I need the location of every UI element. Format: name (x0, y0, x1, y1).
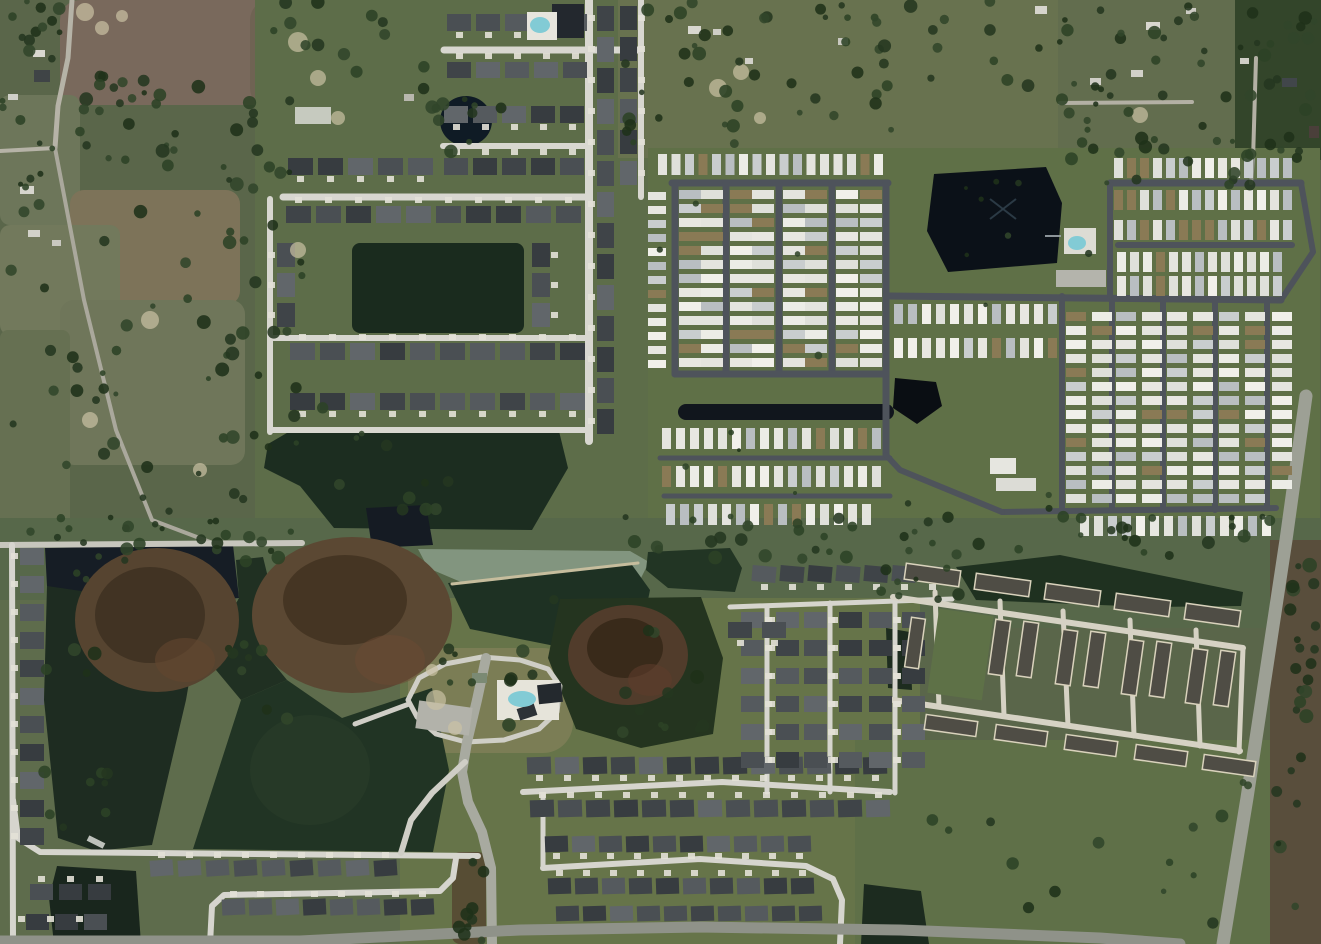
tree (623, 514, 629, 520)
tree (1061, 24, 1073, 36)
mobile-home (861, 154, 870, 175)
tree (793, 491, 797, 495)
house (866, 800, 891, 818)
building (1035, 6, 1047, 14)
house (839, 668, 862, 684)
mobile-home (662, 466, 671, 487)
building (996, 478, 1036, 491)
driveway (588, 201, 595, 207)
mobile-home (1092, 410, 1112, 419)
house (782, 800, 807, 818)
mobile-home (1219, 424, 1239, 433)
tree (990, 57, 999, 66)
tree (116, 99, 124, 107)
mobile-home (1245, 494, 1265, 503)
mobile-home (1092, 438, 1112, 447)
tree (942, 512, 953, 523)
mobile-home (1116, 326, 1136, 335)
house (762, 622, 786, 638)
mobile-home (1272, 424, 1292, 433)
sand-patch (116, 10, 128, 22)
mobile-home (860, 218, 882, 227)
sand-patch (426, 664, 438, 676)
tree (236, 326, 249, 339)
driveway (482, 149, 489, 155)
tree (245, 654, 252, 661)
tree (737, 448, 741, 452)
driveway (569, 149, 576, 155)
tree (1077, 137, 1088, 148)
driveway (539, 411, 546, 417)
mobile-home (1244, 220, 1253, 240)
mobile-home (1020, 304, 1029, 324)
driveway (707, 792, 714, 798)
tree (338, 48, 350, 60)
driveway (894, 701, 901, 707)
house (261, 859, 285, 877)
mobile-home (739, 154, 748, 175)
driveway (847, 792, 854, 798)
tree (829, 111, 838, 120)
mobile-home (805, 288, 827, 297)
mobile-home (1142, 480, 1162, 489)
mobile-home (1270, 220, 1279, 240)
house (348, 158, 373, 175)
mobile-home (679, 260, 701, 269)
mobile-home (807, 154, 816, 175)
mobile-home (836, 204, 858, 213)
tree (142, 90, 147, 95)
mobile-home (1193, 354, 1213, 363)
mobile-home (1066, 354, 1086, 363)
tree (197, 315, 211, 329)
tree (727, 119, 740, 132)
driveway (844, 775, 851, 781)
mobile-home (816, 466, 825, 487)
mobile-home (1231, 220, 1240, 240)
tree (1135, 132, 1148, 145)
tree (351, 66, 363, 78)
tree (255, 371, 263, 379)
driveway (67, 876, 74, 882)
tree (36, 2, 46, 12)
mobile-home (1219, 480, 1239, 489)
tree (1295, 563, 1301, 569)
driveway (11, 833, 18, 839)
mobile-home (648, 262, 666, 270)
tree (240, 640, 249, 649)
driveway (761, 584, 768, 590)
mobile-home (836, 246, 858, 255)
house (526, 206, 551, 223)
driveway (768, 729, 775, 735)
tree (1107, 526, 1115, 534)
tree (1161, 889, 1166, 894)
house (869, 612, 892, 628)
mobile-home (1034, 338, 1043, 358)
house (563, 62, 587, 78)
driveway (551, 312, 558, 318)
mobile-home (746, 428, 755, 449)
mobile-home (752, 288, 774, 297)
tree (1202, 536, 1215, 549)
mobile-home (1219, 340, 1239, 349)
mobile-home (1166, 220, 1175, 240)
tree (248, 183, 258, 193)
driveway (556, 870, 563, 876)
tree (286, 169, 292, 175)
mobile-home (1114, 190, 1123, 210)
tree (397, 504, 409, 516)
tree (443, 643, 454, 654)
house (149, 859, 173, 877)
mobile-home (1257, 220, 1266, 240)
house (726, 800, 751, 818)
house (741, 724, 764, 740)
tree (8, 12, 17, 21)
house (545, 836, 569, 853)
tree (913, 577, 918, 582)
house (346, 206, 371, 223)
driveway (540, 149, 547, 155)
driveway (419, 334, 426, 340)
tree (262, 705, 272, 715)
mobile-home (1066, 410, 1086, 419)
house (741, 668, 764, 684)
house (440, 393, 465, 410)
tree (692, 47, 706, 61)
tree (15, 115, 25, 125)
tree (643, 625, 654, 636)
mobile-home (1167, 438, 1187, 447)
tree (290, 382, 301, 393)
mobile-home (1169, 276, 1178, 296)
mobile-home (1245, 326, 1265, 335)
mobile-home (860, 302, 882, 311)
driveway (588, 108, 595, 114)
driveway (623, 792, 630, 798)
mobile-home (1245, 396, 1265, 405)
driveway (894, 757, 901, 763)
tree (797, 554, 807, 564)
driveway (592, 775, 599, 781)
tree (88, 647, 102, 661)
tree (1022, 79, 1035, 92)
mobile-home (802, 466, 811, 487)
tree (1265, 139, 1277, 151)
mobile-home (783, 204, 805, 213)
tree (40, 283, 49, 292)
tree (256, 537, 267, 548)
tree (905, 500, 911, 506)
tree (880, 564, 891, 575)
tree (107, 437, 120, 450)
house (502, 158, 526, 175)
house (527, 757, 552, 775)
mobile-home (1066, 424, 1086, 433)
mobile-home (844, 428, 853, 449)
house (664, 906, 688, 922)
mobile-home (805, 274, 827, 283)
tree (731, 100, 743, 112)
driveway (771, 640, 778, 646)
tree (1220, 91, 1231, 102)
mobile-home (1193, 494, 1213, 503)
house (772, 906, 796, 922)
house (317, 859, 341, 877)
mobile-home (1142, 382, 1162, 391)
driveway (831, 701, 838, 707)
mobile-home (701, 260, 723, 269)
sand-patch (448, 721, 462, 735)
driveway (11, 805, 18, 811)
tree (940, 15, 949, 24)
driveway (791, 792, 798, 798)
tree (1295, 644, 1304, 653)
house (902, 724, 925, 740)
driveway (638, 139, 645, 145)
house (626, 836, 650, 853)
house (318, 158, 343, 175)
mobile-home (730, 358, 752, 367)
tree (1165, 551, 1174, 560)
tree (639, 90, 645, 96)
swimming-pool (1068, 236, 1086, 250)
driveway (327, 176, 334, 182)
mobile-home (950, 338, 959, 358)
tree (1267, 40, 1275, 48)
mobile-home (1167, 368, 1187, 377)
house (597, 378, 614, 403)
mobile-home (836, 260, 858, 269)
mobile-home (894, 338, 903, 358)
tree (912, 529, 918, 535)
tree (425, 100, 438, 113)
tree (878, 39, 891, 52)
aerial-scene-canvas (0, 0, 1321, 944)
driveway (11, 553, 18, 559)
tree (661, 724, 669, 732)
driveway (511, 124, 518, 130)
tree (1296, 22, 1305, 31)
mobile-home (1247, 252, 1256, 272)
mobile-home (1066, 340, 1086, 349)
tree (121, 557, 128, 564)
house (597, 130, 614, 155)
house (599, 836, 623, 853)
tree (378, 17, 388, 27)
mobile-home (1234, 252, 1243, 272)
tree (759, 13, 769, 23)
mobile-home (736, 504, 745, 525)
tree (728, 430, 734, 436)
mobile-home (1142, 312, 1162, 321)
driveway (638, 46, 645, 52)
tree (37, 171, 43, 177)
house (764, 878, 788, 895)
mobile-home (704, 466, 713, 487)
tree (1098, 86, 1104, 92)
house (505, 14, 529, 31)
tree (141, 461, 153, 473)
tree (468, 678, 476, 686)
tree (786, 78, 796, 88)
driveway (664, 870, 671, 876)
house (378, 158, 403, 175)
building (8, 94, 18, 100)
house (583, 906, 607, 922)
house (560, 393, 585, 410)
house (20, 716, 44, 733)
house (531, 158, 555, 175)
house (620, 161, 637, 185)
driveway (588, 15, 595, 21)
tree (1284, 603, 1296, 615)
tree (99, 236, 109, 246)
house (556, 906, 580, 922)
tree (993, 179, 999, 185)
tree (98, 383, 109, 394)
mobile-home (752, 190, 774, 199)
mobile-home (1167, 424, 1187, 433)
mobile-home (752, 302, 774, 311)
tree (462, 96, 468, 102)
house (88, 884, 111, 900)
mobile-home (1245, 424, 1265, 433)
driveway (11, 721, 18, 727)
tree (1310, 645, 1319, 654)
tree (160, 526, 165, 531)
tree (122, 521, 134, 533)
mobile-home (1167, 494, 1187, 503)
mobile-home (1142, 494, 1162, 503)
house (734, 836, 758, 853)
driveway (620, 775, 627, 781)
house (530, 393, 555, 410)
tree (59, 823, 67, 831)
house (642, 800, 667, 818)
driveway (831, 673, 838, 679)
tree (95, 553, 102, 560)
mobile-home (1272, 452, 1292, 461)
building (688, 26, 701, 34)
mobile-home (860, 260, 882, 269)
driveway (11, 609, 18, 615)
tree (418, 83, 429, 94)
house (473, 158, 497, 175)
road (1060, 102, 1192, 103)
tree (876, 586, 886, 596)
driveway (354, 852, 361, 858)
tree (823, 15, 828, 20)
driveway (268, 282, 275, 288)
tree (943, 565, 950, 572)
mobile-home (701, 344, 723, 353)
tree (722, 25, 733, 36)
mobile-home (1272, 438, 1292, 447)
tree (1114, 147, 1124, 157)
sand-patch (290, 242, 306, 258)
house (680, 836, 704, 853)
house (233, 859, 257, 877)
house (470, 343, 495, 360)
driveway (485, 53, 492, 59)
tree (1273, 75, 1281, 83)
mobile-home (1006, 304, 1015, 324)
tree (72, 362, 82, 372)
swimming-pool (508, 691, 536, 707)
house (698, 800, 723, 818)
mobile-home (764, 504, 773, 525)
marsh-mound (155, 638, 215, 682)
mobile-home (1048, 304, 1057, 324)
house (59, 884, 82, 900)
driveway (768, 701, 775, 707)
mobile-home (752, 246, 774, 255)
mobile-home (1140, 190, 1149, 210)
mobile-home (648, 192, 666, 200)
house (556, 206, 581, 223)
tree (728, 514, 734, 520)
tree (1001, 74, 1013, 86)
tree (243, 96, 256, 109)
road (1002, 508, 1276, 512)
mobile-home (1208, 276, 1217, 296)
tree (1046, 492, 1052, 498)
house (476, 62, 500, 78)
mobile-home (1270, 158, 1279, 178)
driveway (588, 418, 595, 424)
mobile-home (679, 344, 701, 353)
mobile-home (1182, 276, 1191, 296)
mobile-home (1142, 424, 1162, 433)
tree (460, 908, 473, 921)
house (788, 836, 812, 853)
mobile-home (760, 466, 769, 487)
mobile-home (699, 154, 708, 175)
tree (928, 25, 938, 35)
house (754, 800, 779, 818)
tree (458, 928, 471, 941)
mobile-home (752, 316, 774, 325)
tree (1084, 117, 1091, 124)
mobile-home (805, 358, 827, 367)
tree (1238, 529, 1251, 542)
mobile-home (730, 204, 752, 213)
tree (1014, 545, 1023, 554)
driveway (799, 870, 806, 876)
tree (1247, 7, 1258, 18)
tree (1294, 696, 1306, 708)
tree (1224, 180, 1234, 190)
tree (496, 102, 507, 113)
tree (227, 648, 238, 659)
house (597, 99, 614, 124)
mobile-home (1247, 276, 1256, 296)
tree (815, 4, 826, 15)
tree (162, 160, 174, 172)
tree (1190, 12, 1199, 21)
mobile-home (820, 154, 829, 175)
mobile-home (1272, 340, 1292, 349)
tree (1166, 859, 1173, 866)
tree (690, 670, 704, 684)
mobile-home (1142, 340, 1162, 349)
tree (1288, 32, 1300, 44)
mobile-home (1066, 382, 1086, 391)
tree (502, 718, 516, 732)
tree (133, 538, 145, 550)
